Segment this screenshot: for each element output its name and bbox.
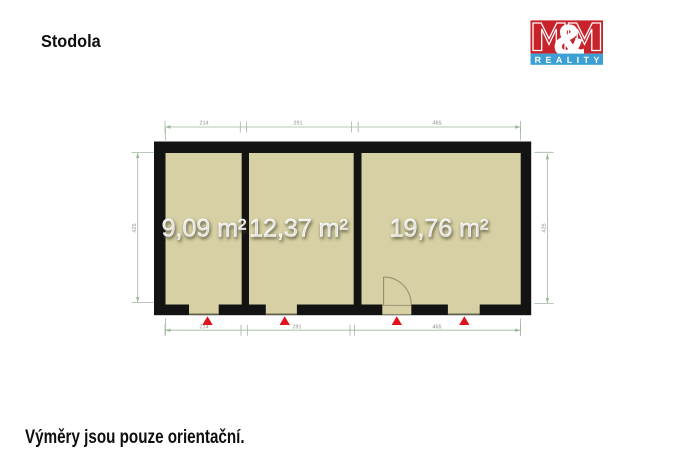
svg-text:9,09 m²: 9,09 m² [162, 214, 247, 242]
svg-text:19,76 m²: 19,76 m² [390, 214, 489, 242]
svg-text:12,37 m²: 12,37 m² [249, 214, 348, 242]
